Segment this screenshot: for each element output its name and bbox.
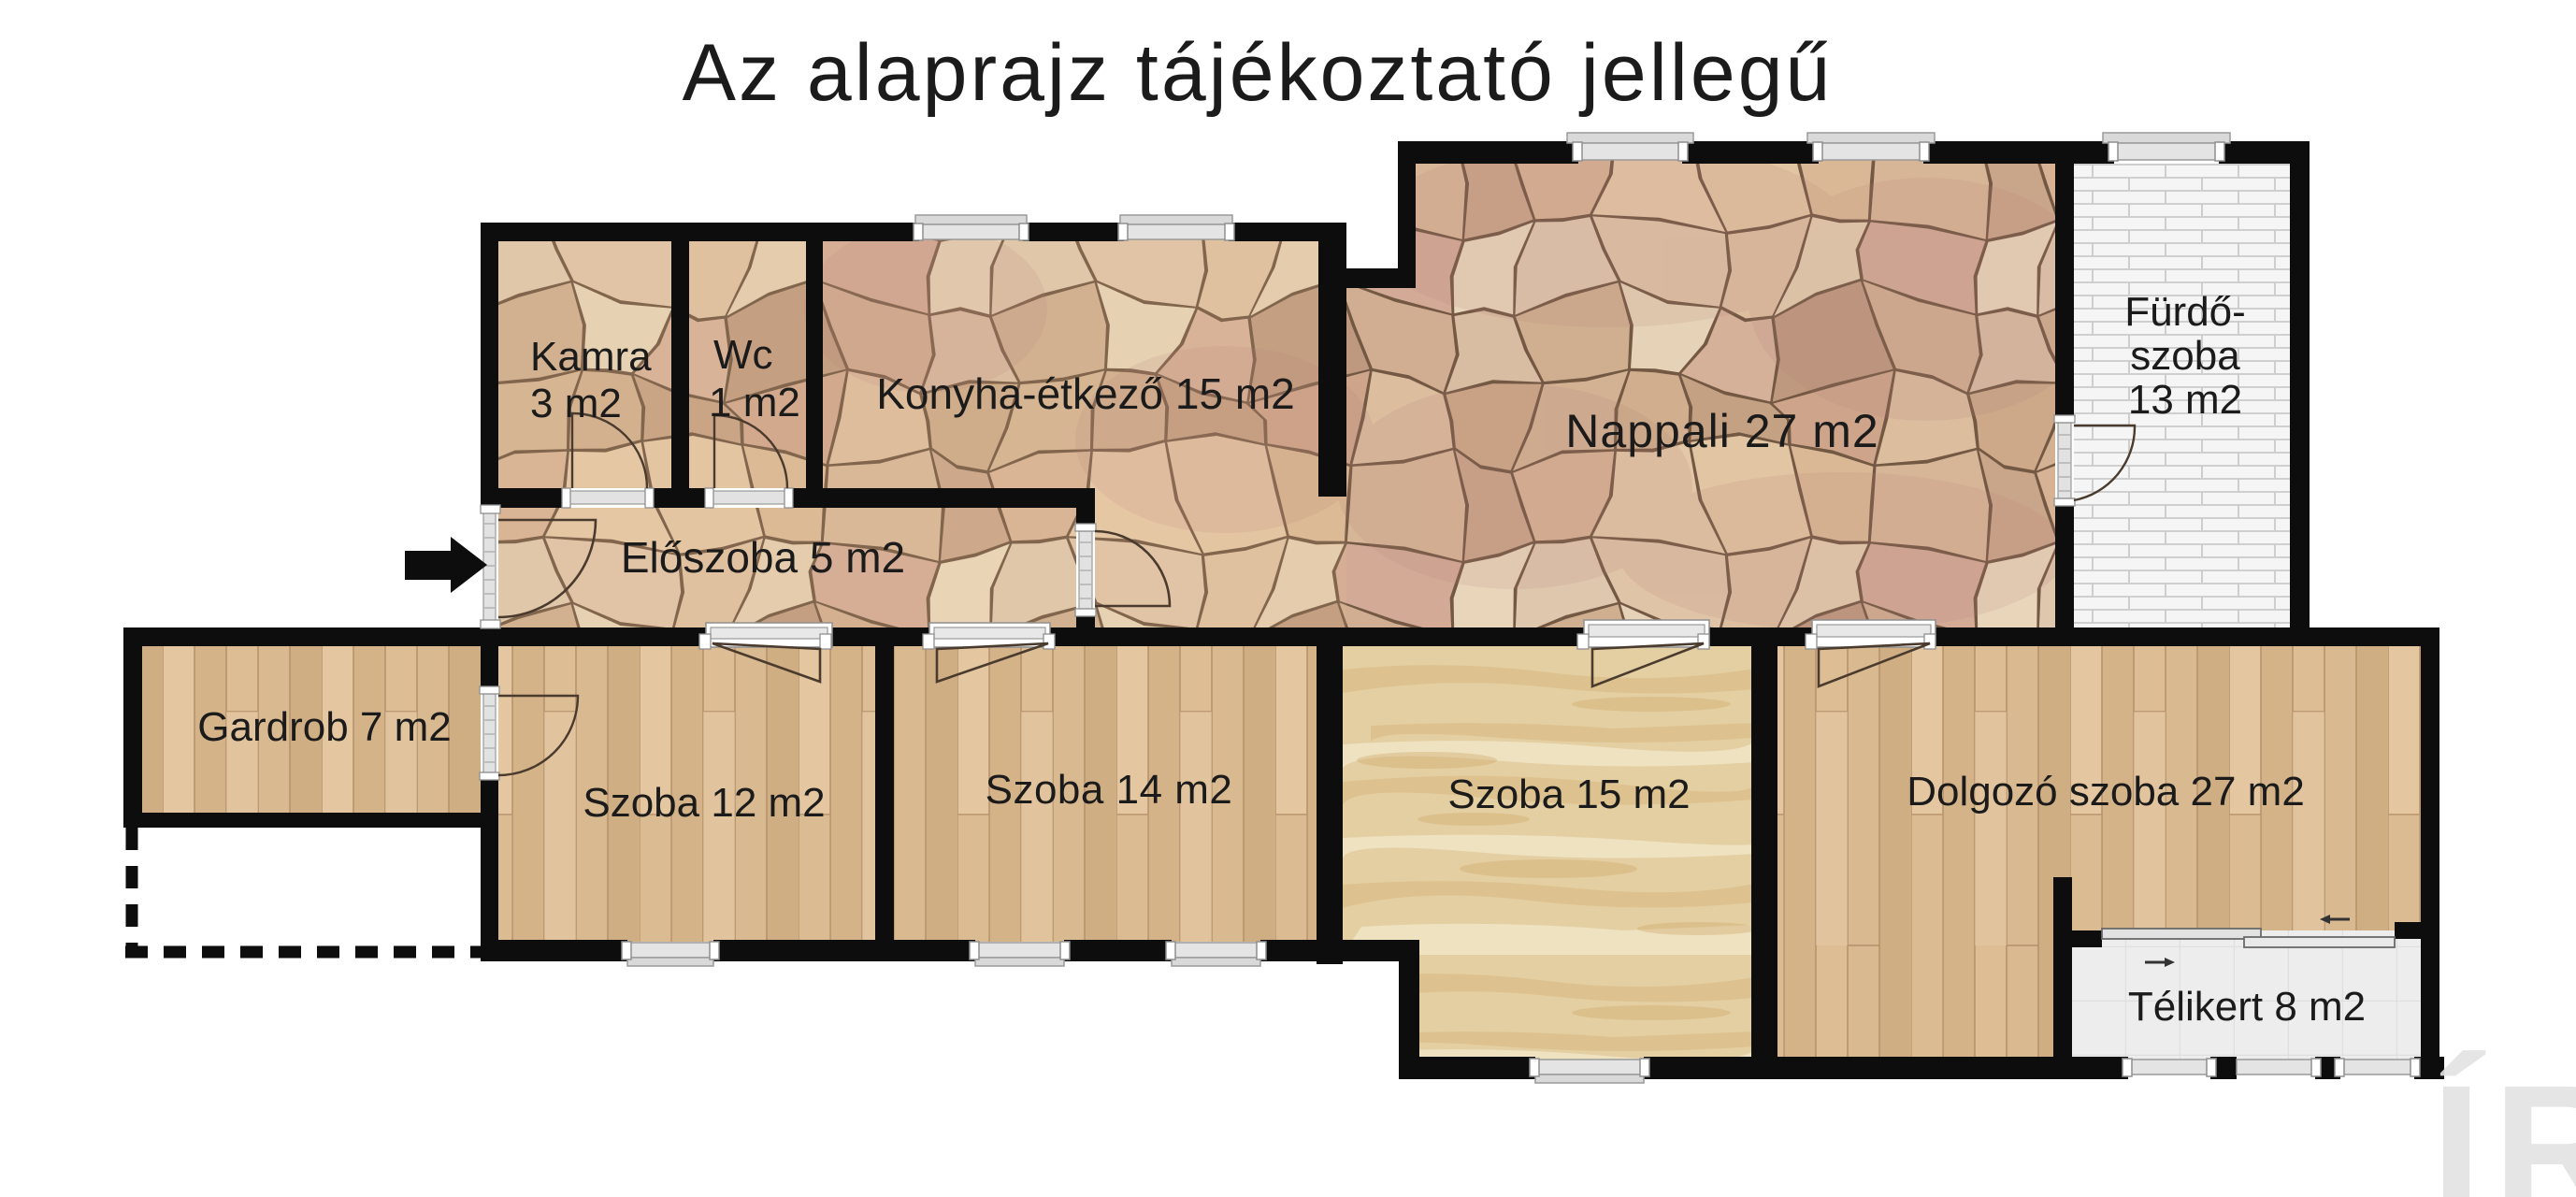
svg-text:1 m2: 1 m2 <box>709 380 800 425</box>
svg-text:Nappali 27 m2: Nappali 27 m2 <box>1565 405 1878 457</box>
svg-text:3 m2: 3 m2 <box>530 381 622 426</box>
svg-text:Fürdő-: Fürdő- <box>2124 289 2246 335</box>
svg-text:Gardrob 7 m2: Gardrob 7 m2 <box>197 704 451 750</box>
svg-text:Kamra: Kamra <box>530 334 652 380</box>
svg-text:Előszoba 5 m2: Előszoba 5 m2 <box>621 533 905 582</box>
svg-text:Dolgozó szoba 27 m2: Dolgozó szoba 27 m2 <box>1907 769 2305 815</box>
svg-text:Szoba 15 m2: Szoba 15 m2 <box>1447 772 1690 817</box>
svg-text:Szoba 14 m2: Szoba 14 m2 <box>986 767 1233 813</box>
svg-text:Szoba 12 m2: Szoba 12 m2 <box>583 780 825 826</box>
svg-text:Wc: Wc <box>713 332 773 378</box>
svg-text:13 m2: 13 m2 <box>2128 377 2242 423</box>
svg-text:Télikert 8 m2: Télikert 8 m2 <box>2128 984 2366 1030</box>
svg-text:Az alaprajz tájékoztató jelleg: Az alaprajz tájékoztató jellegű <box>683 28 1834 118</box>
svg-text:NY: NY <box>2146 1047 2422 1197</box>
svg-text:ÍR: ÍR <box>2431 1047 2576 1197</box>
svg-text:szoba: szoba <box>2130 333 2240 379</box>
svg-text:Konyha-étkező 15 m2: Konyha-étkező 15 m2 <box>876 369 1295 418</box>
